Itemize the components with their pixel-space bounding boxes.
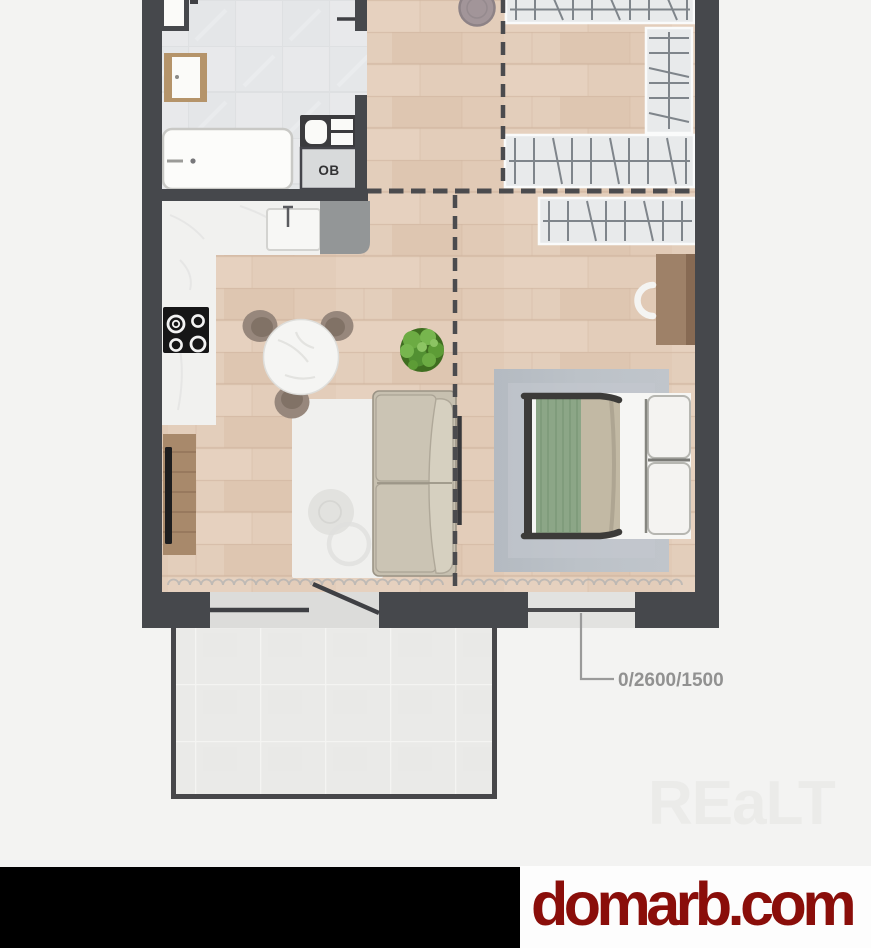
svg-text:ОВ: ОВ	[318, 163, 339, 178]
svg-text:REaLT: REaLT	[648, 769, 836, 838]
svg-text:0/2600/1500: 0/2600/1500	[618, 670, 724, 691]
svg-text:domarb.com: domarb.com	[531, 870, 853, 938]
